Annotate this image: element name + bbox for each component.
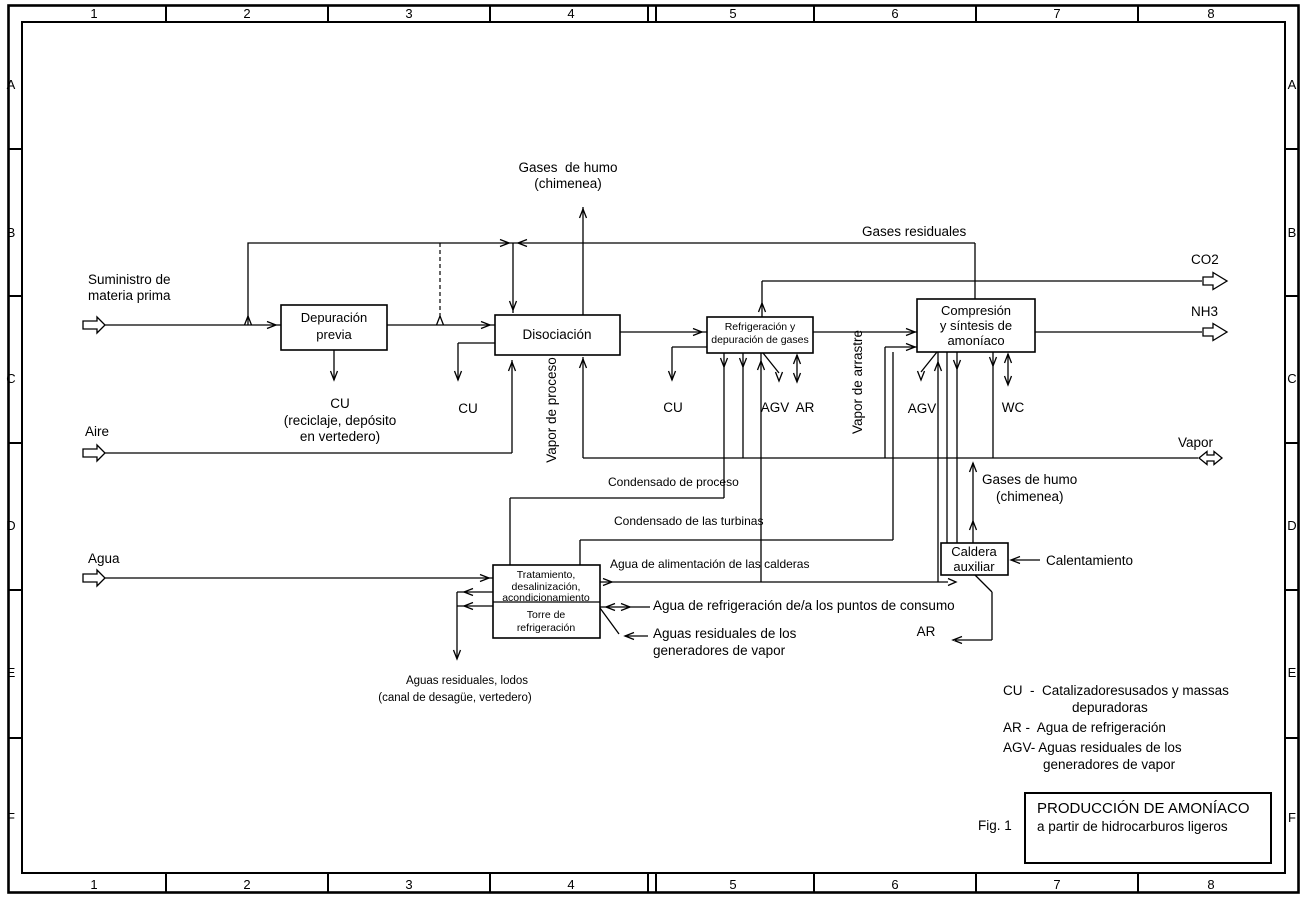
frame-column-labels-top: 1 2 3 4 5 6 7 8 [90,6,1214,21]
label-cu-disociacion: CU [458,401,478,416]
box-refrigeracion-label: depuración de gases [711,334,809,346]
label-aire: Aire [85,424,109,439]
stream-labels: Suministro de materia prima Aire Agua Ga… [85,160,1219,704]
box-refrigeracion-label: Refrigeración y [725,321,796,333]
label-agua: Agua [88,551,120,566]
frame-row-label: B [1288,225,1297,240]
label-aguas-residuales-lodos: Aguas residuales, lodos [406,675,528,687]
frame-col-label: 4 [567,877,574,892]
label-aguas-residuales-generadores: Aguas residuales de los [653,626,797,641]
legend-ar: AR - Agua de refrigeración [1003,720,1166,735]
legend-agv: generadores de vapor [1043,757,1176,772]
title-block: Fig. 1 PRODUCCIÓN DE AMONÍACO a partir d… [978,793,1271,863]
frame-row-label: F [7,810,15,825]
legend-cu: depuradoras [1072,700,1148,715]
frame-col-label: 5 [729,6,736,21]
label-gases-humo-top: Gases de humo [518,160,617,175]
box-torre-label: refrigeración [517,622,576,634]
label-cu-nota: en vertedero) [300,429,380,444]
frame-row-label: B [7,225,16,240]
box-depuracion-label: Depuración [301,310,368,325]
box-depuracion-label: previa [316,327,352,342]
flow-lines [105,207,1202,657]
frame-row-label: C [6,371,15,386]
frame-col-label: 3 [405,877,412,892]
diagram-page: 1 2 3 4 5 6 7 8 1 2 3 4 5 6 7 8 A B C D … [0,0,1307,900]
box-compresion-label: amoníaco [947,333,1004,348]
figure-number: Fig. 1 [978,818,1012,833]
frame-row-label: A [1288,77,1297,92]
label-calentamiento: Calentamiento [1046,553,1133,568]
label-suministro: Suministro de [88,272,171,287]
process-flow-diagram: 1 2 3 4 5 6 7 8 1 2 3 4 5 6 7 8 A B C D … [0,0,1307,900]
label-cu-nota: (reciclaje, depósito [284,413,397,428]
frame-col-label: 6 [891,877,898,892]
frame-col-label: 6 [891,6,898,21]
label-ar-caldera: AR [917,624,936,639]
frame-col-label: 2 [243,877,250,892]
input-arrow-suministro [83,317,105,333]
frame-row-label: E [1288,665,1297,680]
label-gases-humo-caldera: Gases de humo [982,472,1077,487]
frame-col-label: 5 [729,877,736,892]
frame-col-label: 7 [1053,877,1060,892]
label-gases-residuales: Gases residuales [862,224,967,239]
frame-row-labels-right: A B C D E F [1287,77,1296,825]
label-condensado-turbinas: Condensado de las turbinas [614,514,763,528]
box-disociacion-label: Disociación [522,327,591,342]
label-aguas-residuales-lodos: (canal de desagüe, vertedero) [378,692,532,704]
label-cu-refrigeracion: CU [663,400,683,415]
label-vapor-arrastre: Vapor de arrastre [850,330,865,434]
label-vapor-proceso: Vapor de proceso [544,357,559,463]
frame-col-label: 8 [1207,877,1214,892]
label-nh3: NH3 [1191,304,1218,319]
frame-col-label: 1 [90,6,97,21]
box-tratamiento-label: acondicionamiento [502,592,590,604]
label-gases-humo-caldera: (chimenea) [996,489,1064,504]
box-caldera-label: auxiliar [953,559,995,574]
input-arrow-aire [83,445,105,461]
label-vapor: Vapor [1178,435,1214,450]
frame-col-label: 3 [405,6,412,21]
label-cu-depuracion: CU [330,396,350,411]
double-arrow-vapor [1199,452,1222,465]
title-line: a partir de hidrocarburos ligeros [1037,819,1228,834]
frame-column-labels-bottom: 1 2 3 4 5 6 7 8 [90,877,1214,892]
label-agv-compresion: AGV [908,401,937,416]
frame-col-label: 8 [1207,6,1214,21]
title-line: PRODUCCIÓN DE AMONÍACO [1037,800,1250,817]
process-boxes: Depuración previa Disociación Refrigerac… [281,299,1035,638]
box-compresion-label: y síntesis de [940,318,1012,333]
frame-row-label: E [7,665,16,680]
box-tratamiento-label: Tratamiento, [517,569,576,581]
output-arrow-nh3 [1203,324,1227,341]
box-caldera-label: Caldera [951,544,997,559]
label-gases-humo-top: (chimenea) [534,176,602,191]
frame-col-label: 4 [567,6,574,21]
label-wc: WC [1002,400,1025,415]
frame-col-label: 1 [90,877,97,892]
input-arrow-agua [83,570,105,586]
terminal-arrows [83,273,1227,587]
label-ar-refrigeracion: AR [796,400,815,415]
frame-row-label: F [1288,810,1296,825]
label-agua-calderas: Agua de alimentación de las calderas [610,557,809,571]
legend-cu: CU - Catalizadoresusados y massas [1003,683,1229,698]
frame-col-label: 7 [1053,6,1060,21]
frame-row-label: A [7,77,16,92]
label-condensado-proceso: Condensado de proceso [608,475,739,489]
label-suministro: materia prima [88,288,171,303]
legend: CU - Catalizadoresusados y massas depura… [1003,683,1229,772]
frame-col-label: 2 [243,6,250,21]
frame-row-label: D [6,518,15,533]
frame-row-label: D [1287,518,1296,533]
label-aguas-residuales-generadores: generadores de vapor [653,643,786,658]
label-agv-refrigeracion: AGV [761,400,790,415]
frame-row-label: C [1287,371,1296,386]
label-agua-refrigeracion-consumo: Agua de refrigeración de/a los puntos de… [653,598,955,613]
legend-agv: AGV- Aguas residuales de los [1003,740,1182,755]
box-compresion-label: Compresión [941,303,1011,318]
label-co2: CO2 [1191,252,1219,267]
output-arrow-co2 [1203,273,1227,290]
box-torre-label: Torre de [527,609,566,621]
